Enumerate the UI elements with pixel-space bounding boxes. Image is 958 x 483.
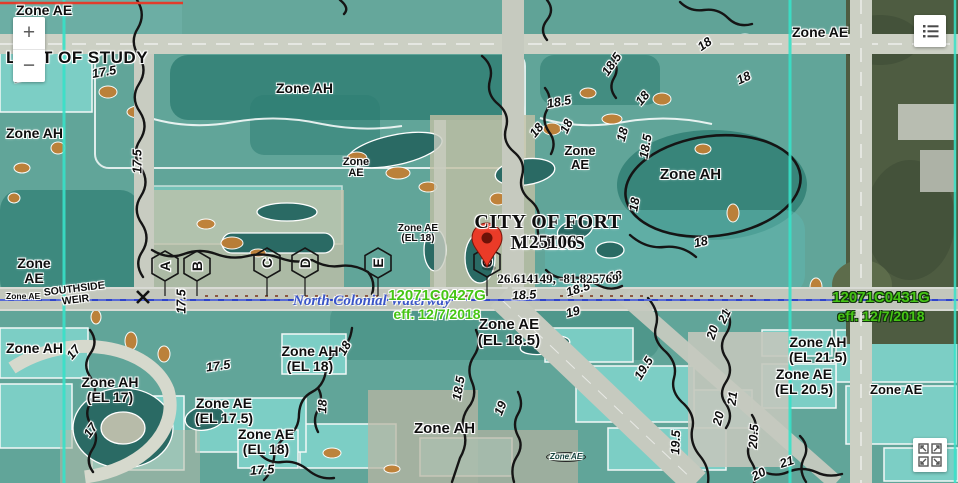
cross-section-letter: B	[189, 261, 205, 271]
zoom-out-button[interactable]: −	[13, 50, 45, 82]
firm-panel-label-left: 12071C0427G eff. 12/7/2018	[372, 287, 502, 323]
panel-id: 12071C0431G	[826, 289, 936, 308]
menu-button[interactable]	[914, 15, 946, 47]
firm-panel-label-right: 12071C0431G eff. 12/7/2018	[826, 289, 936, 325]
panel-id: 12071C0427G	[372, 287, 502, 306]
panel-effective-date: eff. 12/7/2018	[826, 308, 936, 326]
cross-section-letter: D	[297, 258, 313, 268]
zoom-in-button[interactable]: +	[13, 17, 45, 50]
zoom-control[interactable]: + −	[13, 17, 45, 82]
expand-button[interactable]	[913, 438, 947, 472]
cross-section-letter: A	[157, 261, 173, 271]
map-canvas: A B C D E G	[0, 0, 958, 483]
cross-section-letter: C	[259, 258, 275, 268]
panel-effective-date: eff. 12/7/2018	[372, 306, 502, 324]
menu-icon	[914, 15, 946, 47]
flood-map-viewer[interactable]: A B C D E G Zone AE Zone AH Zone AH Zone…	[0, 0, 958, 483]
expand-icon	[913, 438, 947, 472]
cross-section-letter: E	[370, 258, 386, 267]
